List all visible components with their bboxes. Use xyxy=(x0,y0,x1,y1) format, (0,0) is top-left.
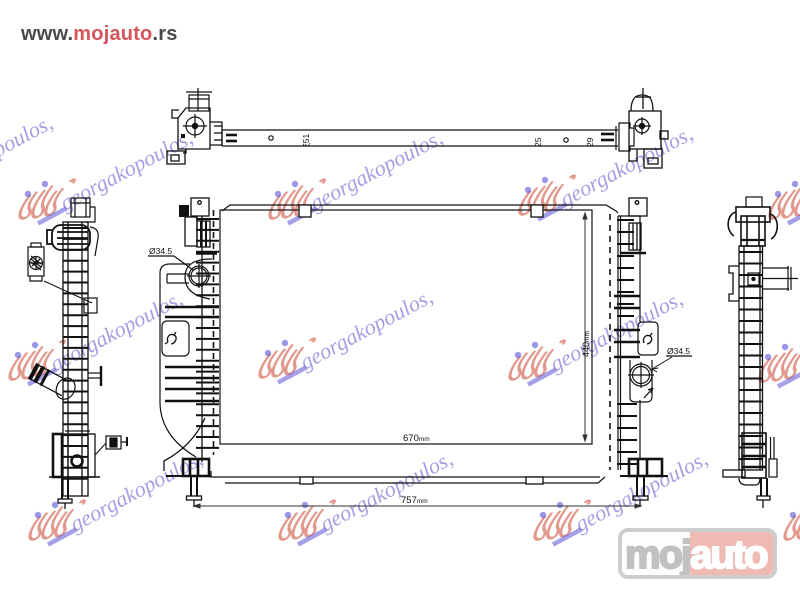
svg-text:georgakopoulos,: georgakopoulos, xyxy=(56,125,197,216)
svg-text:670mm: 670mm xyxy=(403,433,430,444)
svg-text:Ø34.5: Ø34.5 xyxy=(667,346,690,356)
svg-text:Ø34.5: Ø34.5 xyxy=(149,246,172,256)
svg-text:georgakopoulos,: georgakopoulos, xyxy=(46,286,187,377)
svg-text:25: 25 xyxy=(533,137,543,147)
svg-text:georgakopoulos,: georgakopoulos, xyxy=(556,121,697,212)
svg-text:757mm: 757mm xyxy=(401,495,428,506)
svg-text:ξ51: ξ51 xyxy=(301,133,311,147)
svg-text:29: 29 xyxy=(585,137,595,147)
svg-text:georgakopoulos,: georgakopoulos, xyxy=(316,446,457,537)
svg-text:georgakopoulos,: georgakopoulos, xyxy=(306,125,447,216)
svg-text:georgakopoulos,: georgakopoulos, xyxy=(0,110,57,201)
svg-text:georgakopoulos,: georgakopoulos, xyxy=(296,284,437,375)
